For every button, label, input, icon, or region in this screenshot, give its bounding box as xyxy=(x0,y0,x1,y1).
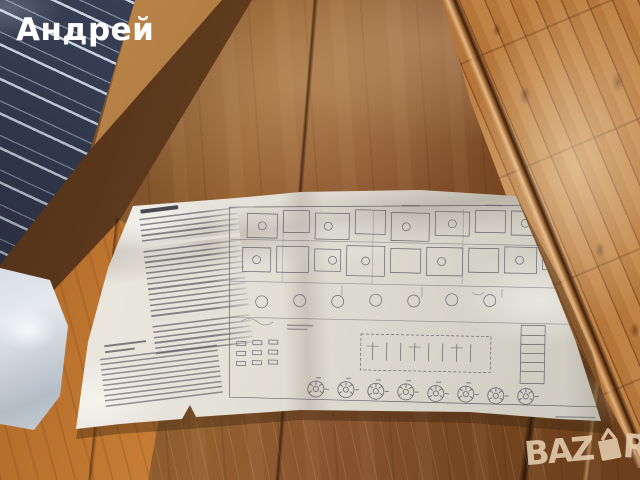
logo-text-r: R xyxy=(621,431,640,462)
tube-base-row xyxy=(308,381,539,405)
typed-text-lines xyxy=(100,345,223,411)
scene-photo: Андрей BAZ R xyxy=(0,0,640,480)
logo-text-baz: BAZ xyxy=(523,434,594,470)
typed-text-line xyxy=(104,340,146,347)
dashed-signal-box xyxy=(360,334,491,373)
terminal-strip xyxy=(520,325,545,383)
shopping-bag-icon xyxy=(593,427,623,462)
typed-text-heading xyxy=(140,205,178,214)
typed-text-line xyxy=(105,348,135,354)
component-grid xyxy=(236,339,278,366)
wiring-squiggles xyxy=(241,283,502,329)
watermark-text: Андрей xyxy=(16,12,154,48)
typed-text-block-2 xyxy=(98,330,224,416)
